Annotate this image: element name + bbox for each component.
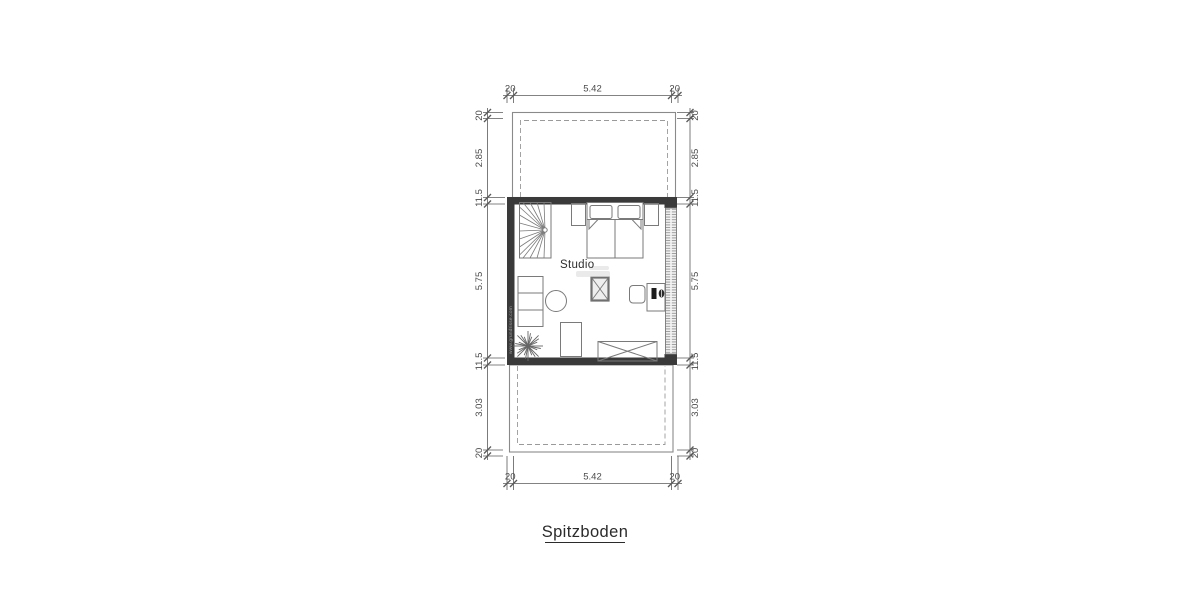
armchair-icon — [561, 323, 582, 357]
desk-icon — [647, 284, 665, 312]
dim-bottom-2: 20 — [669, 472, 680, 483]
dim-left-5: 3.03 — [474, 398, 485, 417]
floorplan-drawing: Studio www.grundrisse.com — [0, 0, 1200, 600]
dim-bottom-1: 5.42 — [583, 472, 602, 483]
lower-roof-region — [510, 365, 674, 452]
floorplan-page: Studio www.grundrisse.com — [0, 0, 1200, 600]
plan-title: Spitzboden — [542, 523, 629, 541]
plan-title-group: Spitzboden — [542, 523, 629, 543]
dim-left-6: 20 — [474, 448, 485, 459]
double-bed-icon — [572, 203, 659, 259]
dim-right-3: 5.75 — [690, 272, 701, 291]
room-label: Studio — [560, 259, 594, 271]
watermark: www.grundrisse.com — [508, 306, 514, 354]
dim-right-1: 2.85 — [690, 149, 701, 168]
dim-left-0: 20 — [474, 110, 485, 121]
dim-left-3: 5.75 — [474, 272, 485, 291]
dim-bottom-0: 20 — [505, 472, 516, 483]
shelf-icon — [518, 277, 543, 327]
spiral-staircase-icon — [520, 203, 552, 259]
dim-top-1: 5.42 — [583, 84, 602, 95]
dim-top-2: 20 — [669, 84, 680, 95]
dim-right-5: 3.03 — [690, 398, 701, 417]
desk-chair-icon — [630, 286, 646, 304]
dim-right-4: 11.5 — [690, 353, 701, 371]
dim-right-0: 20 — [690, 110, 701, 121]
upper-roof-region — [513, 113, 676, 198]
dim-left-4: 11.5 — [474, 353, 485, 371]
dim-top-0: 20 — [505, 84, 516, 95]
plant-icon — [513, 331, 543, 361]
dim-chain-left — [483, 108, 505, 460]
dim-left-1: 2.85 — [474, 149, 485, 168]
dim-right-2: 11.5 — [690, 189, 701, 207]
hatched-right-wall — [666, 208, 677, 354]
furniture — [513, 203, 665, 362]
chimney-icon — [592, 278, 609, 301]
dim-left-2: 11.5 — [474, 189, 485, 207]
dim-right-6: 20 — [690, 448, 701, 459]
round-table-icon — [546, 291, 567, 312]
dimension-lines — [483, 88, 694, 490]
